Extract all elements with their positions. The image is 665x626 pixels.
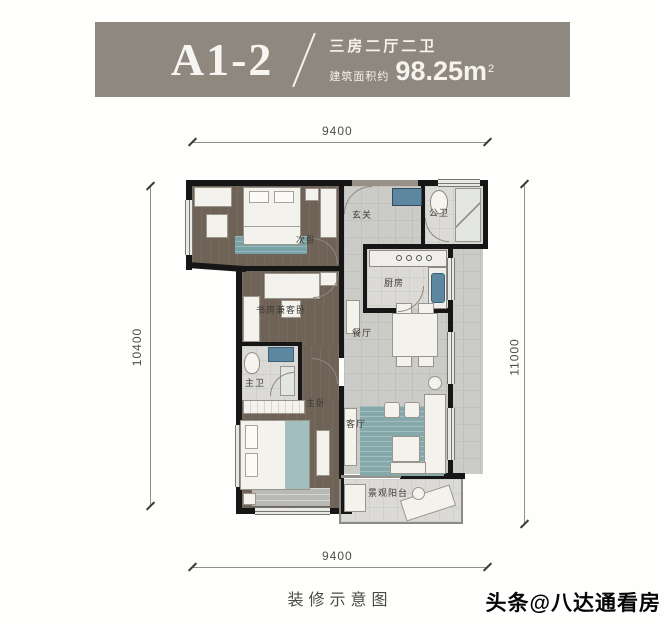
bed [243, 187, 301, 245]
balcony-plant [412, 487, 425, 500]
room-label-entry: 玄关 [352, 208, 372, 221]
dining-chair [418, 356, 434, 367]
area-prefix: 建筑面积约 [329, 68, 389, 84]
master-bottom-window [255, 507, 330, 515]
bath-top-window [438, 179, 480, 187]
floorplan-page: A1-2 三房二厅二卫 建筑面积约 98.25m 2 9400 9400 104… [0, 0, 665, 626]
wall-master-living-a [339, 346, 344, 358]
wall-kitchen-left [363, 244, 367, 312]
master-bed [240, 420, 310, 490]
watermark-text: 头条@八达通看房 [486, 587, 661, 617]
unit-code: A1-2 [171, 37, 274, 83]
room-label-study: 书房兼客卧 [256, 303, 306, 316]
room-label-public-bathroom: 公卫 [429, 206, 449, 219]
room-label-living: 客厅 [346, 417, 366, 430]
dim-line-bottom [192, 567, 488, 568]
dim-right-value: 11000 [508, 338, 522, 375]
wall-study-right [339, 266, 344, 346]
dim-line-left [150, 186, 151, 506]
sofa [424, 394, 446, 474]
slash-divider-icon [293, 32, 317, 87]
area-number: 98.25m [395, 58, 487, 85]
dim-tick [483, 562, 492, 571]
entry-door-segment [352, 180, 418, 186]
room-label-master-bedroom: 主卧 [306, 396, 326, 409]
guest-sofa-bed [264, 273, 320, 299]
title-banner: A1-2 三房二厅二卫 建筑面积约 98.25m 2 [95, 22, 570, 97]
stove-burner [396, 255, 402, 261]
room-label-kitchen: 厨房 [384, 276, 404, 289]
master-toilet [244, 352, 260, 374]
stove-burner [406, 255, 412, 261]
master-sink [268, 347, 294, 362]
dresser [320, 188, 337, 238]
coffee-table [392, 436, 420, 462]
master-rug [252, 488, 330, 506]
dining-table [392, 313, 438, 357]
shoe-cabinet [392, 188, 422, 206]
master-wardrobe [243, 400, 305, 414]
nightstand [305, 188, 319, 201]
area-superscript: 2 [488, 63, 494, 75]
secondary-bedroom-window [185, 200, 193, 255]
room-label-dining: 餐厅 [352, 326, 372, 339]
shower-stall [455, 188, 481, 242]
living-window [447, 408, 455, 460]
wall-bedroom-study [236, 266, 344, 271]
armchair [384, 402, 400, 418]
plan-caption: 装修示意图 [250, 586, 430, 610]
dim-tick [483, 137, 492, 146]
wall-bedroom-hall [339, 180, 344, 266]
dim-tick [520, 519, 529, 528]
unit-info: 三房二厅二卫 建筑面积约 98.25m 2 [329, 35, 494, 85]
dim-top-value: 9400 [322, 124, 353, 138]
stove-burner [426, 255, 432, 261]
dim-line-right [524, 184, 525, 524]
wall-right-upper [483, 180, 488, 248]
wall-kitchen-top [363, 244, 453, 249]
dining-window [447, 332, 455, 384]
side-table [206, 214, 228, 238]
room-label-secondary-bedroom: 次卧 [296, 233, 316, 246]
wall-masterbath-top [242, 342, 302, 346]
floor-lamp [428, 376, 442, 390]
dim-line-top [192, 142, 488, 143]
balcony-cabinet [344, 484, 366, 512]
kitchen-sink [431, 273, 445, 303]
wall-masterbath-right [298, 342, 302, 400]
stove-burner [416, 255, 422, 261]
room-label-master-bathroom: 主卫 [245, 376, 265, 389]
dim-bottom-value: 9400 [322, 549, 353, 563]
layout-type: 三房二厅二卫 [329, 35, 494, 56]
dim-left-value: 10400 [130, 328, 144, 366]
dining-chair [396, 356, 412, 367]
kitchen-window [447, 258, 455, 300]
wardrobe [194, 187, 232, 207]
area-line: 建筑面积约 98.25m 2 [329, 58, 494, 85]
tv-bench [390, 462, 426, 474]
wall-top-left [186, 180, 342, 186]
armchair [404, 402, 420, 418]
room-label-balcony: 景观阳台 [368, 486, 408, 499]
master-nightstand [243, 493, 256, 505]
dim-tick [146, 501, 155, 510]
master-bench [316, 430, 330, 476]
